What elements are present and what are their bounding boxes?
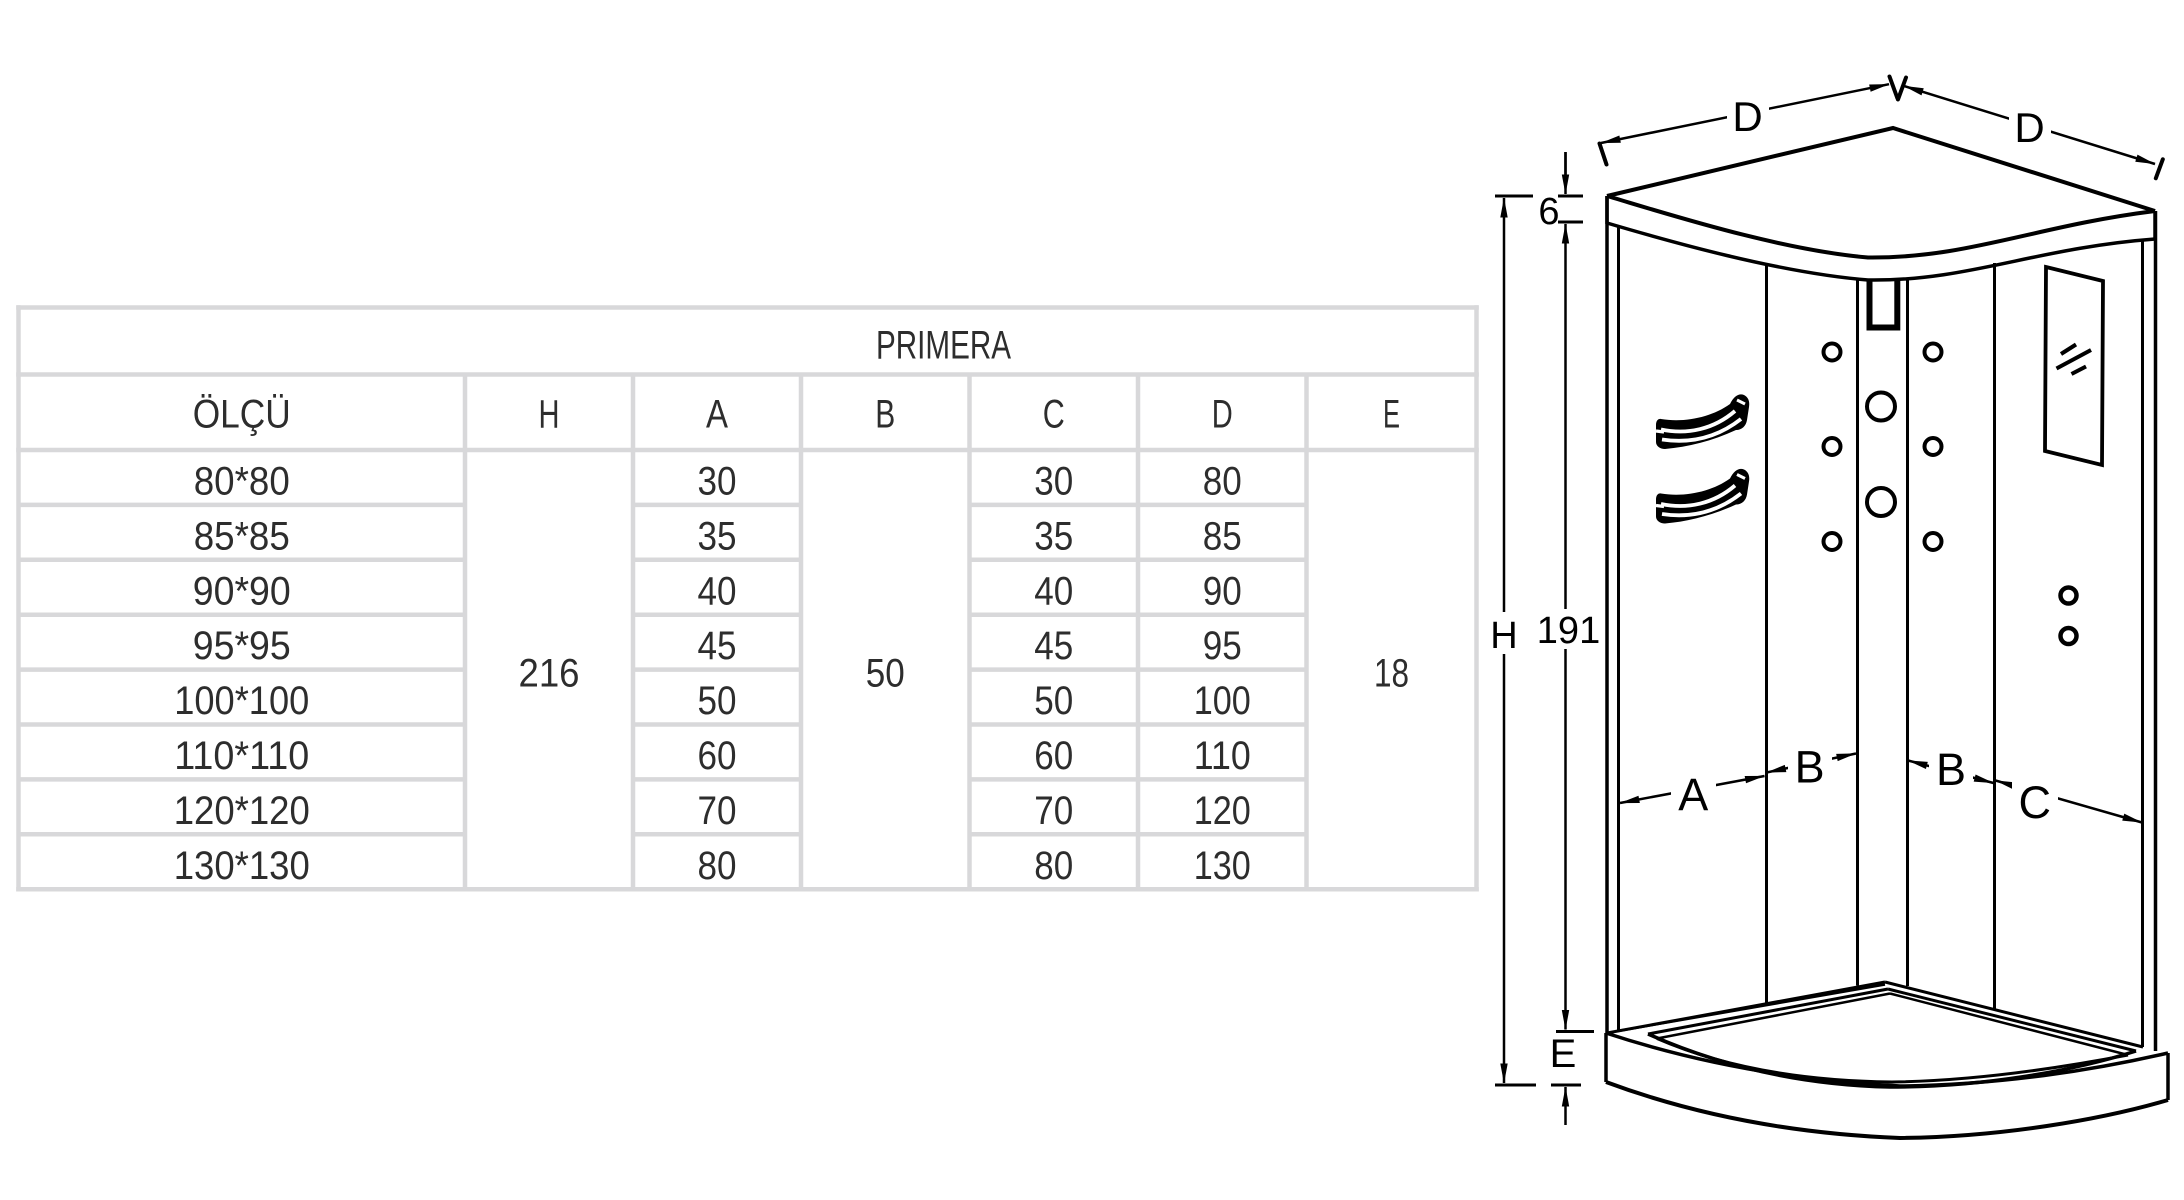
svg-text:85*85: 85*85 — [194, 514, 290, 558]
svg-text:PRIMERA: PRIMERA — [876, 324, 1011, 368]
svg-text:30: 30 — [698, 459, 737, 503]
svg-text:A: A — [1678, 769, 1708, 820]
svg-text:C: C — [2018, 777, 2051, 828]
svg-text:50: 50 — [866, 652, 905, 696]
svg-text:90: 90 — [1203, 569, 1242, 613]
svg-text:D: D — [2014, 104, 2044, 151]
svg-text:E: E — [1383, 393, 1400, 437]
svg-text:35: 35 — [1034, 514, 1073, 558]
svg-text:6: 6 — [1538, 191, 1559, 233]
svg-text:95*95: 95*95 — [193, 624, 291, 668]
svg-text:B: B — [1795, 742, 1825, 793]
svg-text:40: 40 — [698, 569, 737, 613]
svg-text:45: 45 — [698, 624, 737, 668]
svg-text:18: 18 — [1374, 652, 1409, 696]
svg-text:60: 60 — [698, 734, 737, 778]
svg-text:A: A — [706, 393, 728, 437]
svg-text:120: 120 — [1194, 789, 1251, 833]
svg-text:H: H — [539, 393, 560, 437]
svg-text:50: 50 — [698, 679, 737, 723]
svg-text:130*130: 130*130 — [174, 844, 310, 888]
svg-text:D: D — [1732, 93, 1762, 140]
svg-text:E: E — [1550, 1032, 1577, 1076]
svg-text:80: 80 — [1203, 459, 1242, 503]
svg-text:80: 80 — [1034, 844, 1073, 888]
svg-text:C: C — [1043, 393, 1065, 437]
svg-text:45: 45 — [1034, 624, 1073, 668]
svg-text:40: 40 — [1034, 569, 1073, 613]
svg-text:216: 216 — [519, 652, 580, 696]
svg-text:95: 95 — [1203, 624, 1242, 668]
svg-text:ÖLÇÜ: ÖLÇÜ — [193, 393, 291, 437]
svg-text:100: 100 — [1194, 679, 1251, 723]
svg-text:B: B — [875, 393, 895, 437]
svg-text:D: D — [1212, 393, 1233, 437]
svg-text:110: 110 — [1194, 734, 1251, 778]
svg-text:B: B — [1936, 744, 1966, 795]
svg-text:35: 35 — [698, 514, 737, 558]
svg-text:H: H — [1490, 615, 1517, 657]
svg-text:90*90: 90*90 — [193, 569, 291, 613]
svg-text:80*80: 80*80 — [194, 459, 290, 503]
svg-text:100*100: 100*100 — [174, 679, 309, 723]
svg-text:120*120: 120*120 — [174, 789, 310, 833]
svg-text:130: 130 — [1194, 844, 1251, 888]
svg-text:85: 85 — [1203, 514, 1242, 558]
svg-text:30: 30 — [1034, 459, 1073, 503]
svg-text:70: 70 — [1034, 789, 1073, 833]
svg-text:50: 50 — [1034, 679, 1073, 723]
svg-text:80: 80 — [698, 844, 737, 888]
svg-text:60: 60 — [1034, 734, 1073, 778]
svg-text:191: 191 — [1537, 610, 1600, 652]
svg-text:110*110: 110*110 — [174, 734, 309, 778]
svg-text:70: 70 — [698, 789, 737, 833]
